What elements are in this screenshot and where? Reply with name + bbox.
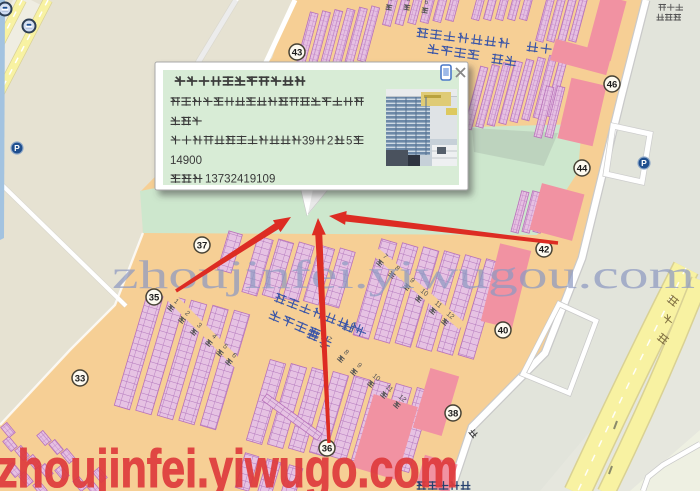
svg-text:46: 46 [607,79,618,90]
svg-text:13732419109: 13732419109 [205,174,275,186]
svg-text:P: P [641,158,647,168]
svg-text:37: 37 [197,240,208,251]
svg-text:38: 38 [448,408,459,419]
svg-text:5: 5 [346,136,352,148]
svg-text:44: 44 [577,163,588,174]
svg-text:40: 40 [498,325,509,336]
svg-text:2: 2 [327,136,333,148]
svg-text:14900: 14900 [170,155,202,167]
svg-text:P: P [14,143,20,153]
svg-text:43: 43 [292,47,303,58]
svg-text:33: 33 [75,373,86,384]
svg-text:39: 39 [302,136,315,148]
svg-text:zhoujinfei.yiwugo.com: zhoujinfei.yiwugo.com [0,439,458,491]
